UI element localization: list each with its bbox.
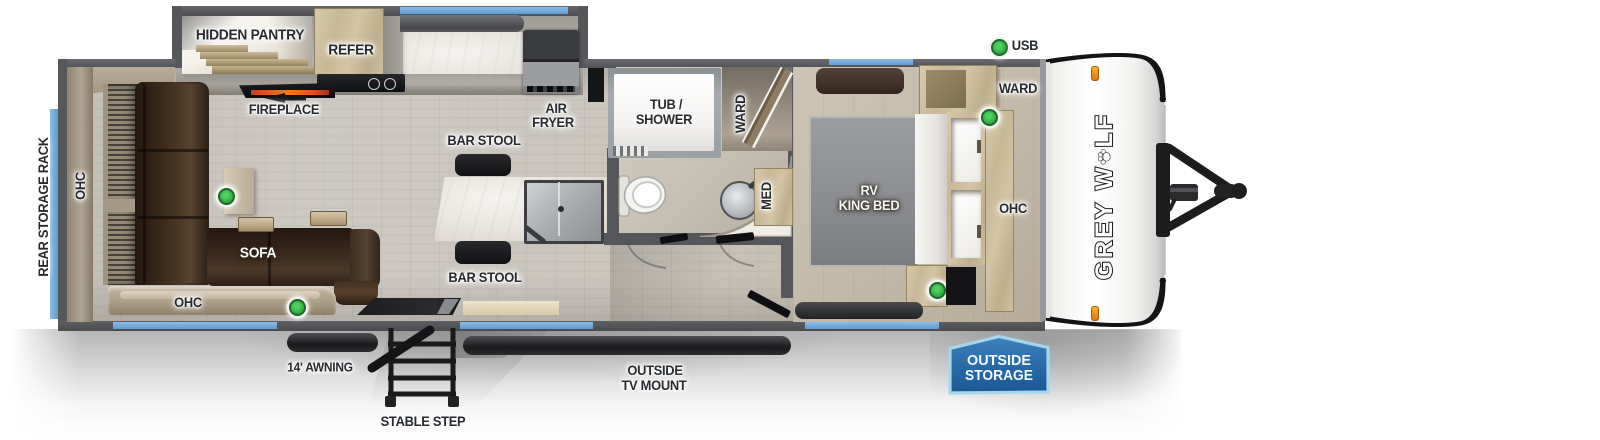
svg-text:STORAGE: STORAGE	[965, 368, 1033, 384]
svg-text:OUTSIDE: OUTSIDE	[967, 353, 1031, 369]
